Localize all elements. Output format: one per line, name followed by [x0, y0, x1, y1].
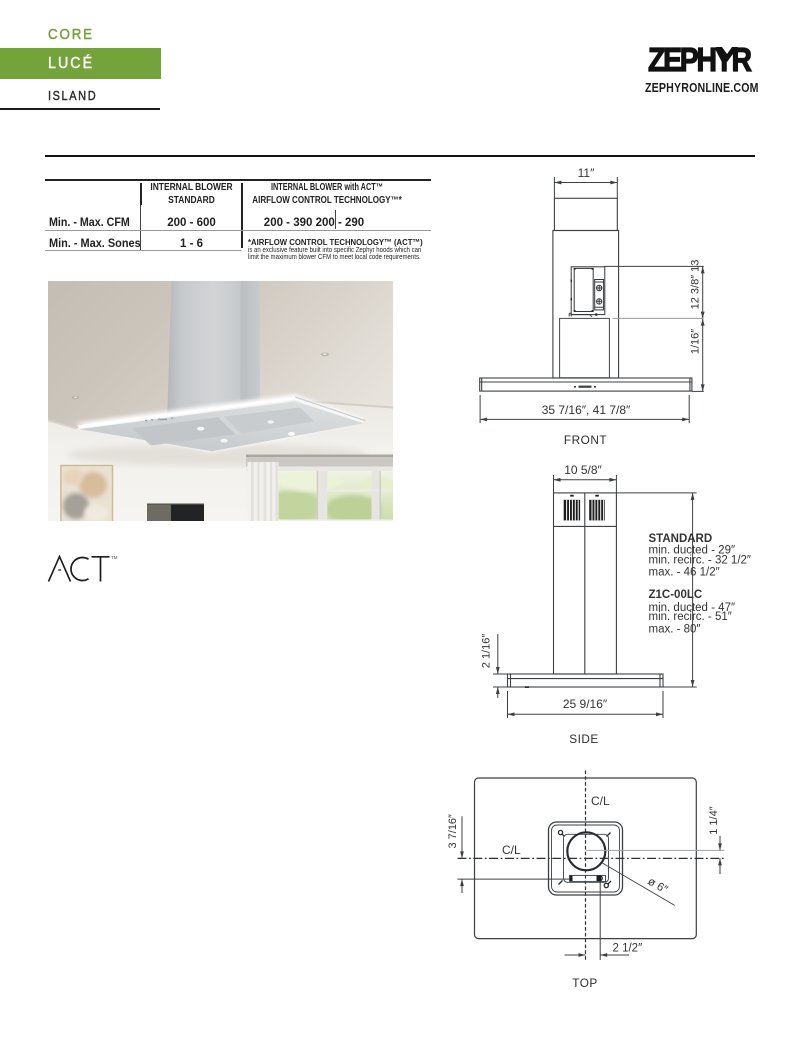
svg-text:25 9/16″: 25 9/16″ — [563, 697, 608, 711]
svg-text:min. recirc. - 32 1/2″: min. recirc. - 32 1/2″ — [649, 555, 752, 567]
svg-text:35 7/16″, 41 7/8″: 35 7/16″, 41 7/8″ — [542, 403, 631, 417]
svg-text:max. - 80″: max. - 80″ — [649, 624, 701, 636]
svg-text:C/L: C/L — [502, 843, 521, 857]
svg-text:12 3/8″ 13: 12 3/8″ 13 — [690, 260, 702, 310]
svg-text:11″: 11″ — [578, 166, 595, 180]
svg-text:TM: TM — [111, 555, 118, 560]
svg-text:1 1/4″: 1 1/4″ — [708, 806, 720, 834]
svg-text:2 1/16″: 2 1/16″ — [481, 634, 493, 669]
svg-text:3 7/16″: 3 7/16″ — [447, 814, 459, 849]
svg-text:1/16″: 1/16″ — [690, 329, 702, 354]
svg-text:C/L: C/L — [591, 794, 610, 808]
svg-text:Z1C-00LC: Z1C-00LC — [649, 589, 703, 601]
svg-text:ø 6″: ø 6″ — [646, 876, 670, 897]
svg-text:TOP: TOP — [572, 976, 598, 990]
svg-text:FRONT: FRONT — [564, 433, 607, 447]
svg-text:min. recirc. - 51″: min. recirc. - 51″ — [649, 611, 732, 623]
svg-text:max. - 46 1/2″: max. - 46 1/2″ — [649, 567, 720, 579]
svg-text:STANDARD: STANDARD — [649, 533, 713, 545]
svg-text:2 1/2″: 2 1/2″ — [613, 943, 643, 955]
svg-text:10 5/8″: 10 5/8″ — [564, 463, 602, 477]
svg-text:SIDE: SIDE — [569, 732, 599, 746]
